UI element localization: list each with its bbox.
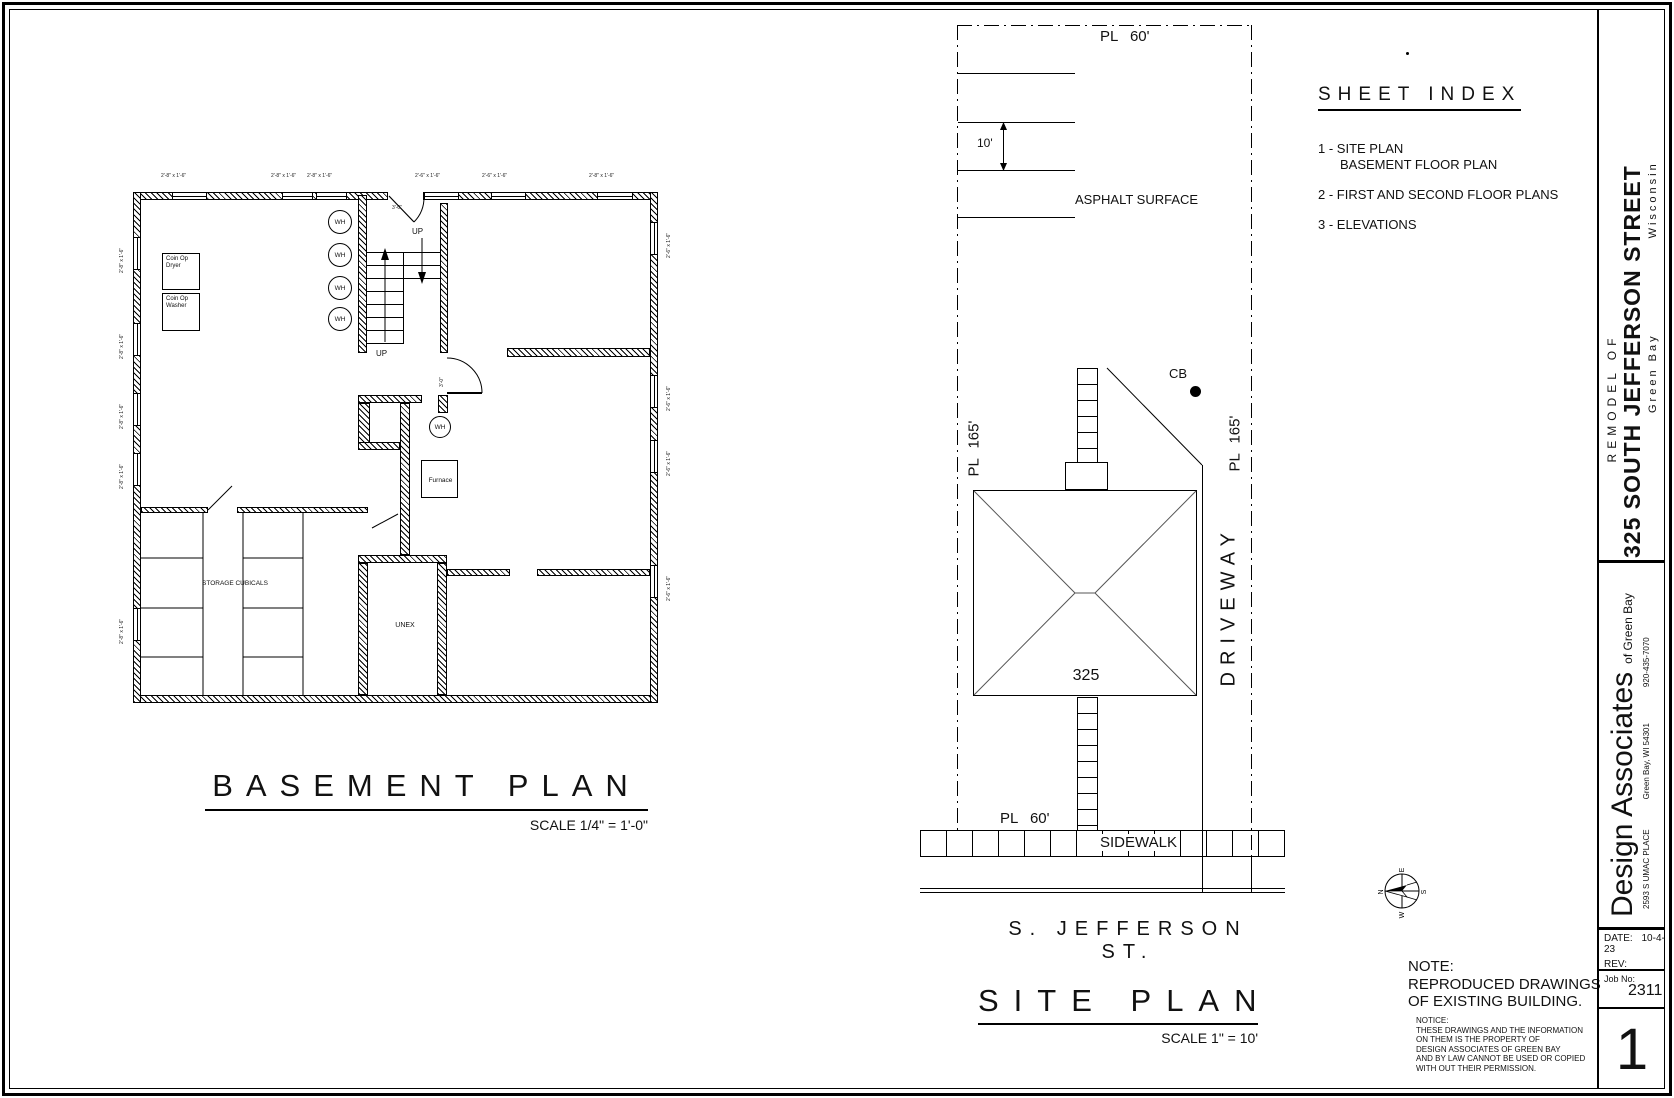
window-dim-label: 2'-8" x 1'-6" bbox=[589, 173, 614, 179]
site-title-block: SITE PLAN SCALE 1" = 10' bbox=[978, 983, 1258, 1046]
window-dim-label: 2'-8" x 1'-6" bbox=[119, 604, 125, 644]
date-label: DATE: bbox=[1604, 933, 1633, 944]
project-state: Wisconsin bbox=[1647, 161, 1659, 238]
pl-left-label: PL 165' bbox=[966, 415, 983, 477]
date-rev-box: DATE: 10-4-23 REV: bbox=[1599, 930, 1665, 971]
notice-line: WITH OUT THEIR PERMISSION. bbox=[1416, 1064, 1585, 1074]
building-number: 325 bbox=[1064, 667, 1108, 685]
window-dim-label: 2'-8" x 1'-6" bbox=[307, 173, 332, 179]
firm-name-row: Design Associates of Green Bay bbox=[1606, 563, 1640, 925]
note-line-2: OF EXISTING BUILDING. bbox=[1408, 993, 1601, 1011]
sidewalk-label: SIDEWALK bbox=[1098, 834, 1179, 851]
remodel-of-label: REMODEL OF bbox=[1605, 248, 1619, 548]
note-head: NOTE: bbox=[1408, 958, 1601, 976]
firm-city-state-zip: Green Bay, WI 54301 bbox=[1642, 723, 1651, 799]
parking-stripe bbox=[958, 122, 1075, 123]
driveway-flare bbox=[1107, 368, 1202, 465]
sheet-index-title: SHEET INDEX bbox=[1318, 84, 1521, 111]
sheet-number: 1 bbox=[1616, 1016, 1648, 1083]
compass-e: E bbox=[1399, 867, 1406, 872]
compass-n: N bbox=[1378, 889, 1385, 894]
compass-s: S bbox=[1421, 889, 1428, 894]
property-line-right bbox=[1251, 25, 1252, 857]
notice-line: ON THEM IS THE PROPERTY OF bbox=[1416, 1035, 1585, 1045]
project-box: REMODEL OF 325 SOUTH JEFFERSON STREET Gr… bbox=[1599, 9, 1665, 560]
rev-label: REV: bbox=[1604, 959, 1665, 970]
firm-contact-row: 2593 S UMAC PLACE Green Bay, WI 54301 92… bbox=[1642, 563, 1651, 925]
firm-address: 2593 S UMAC PLACE bbox=[1642, 829, 1651, 909]
notice-head: NOTICE: bbox=[1416, 1016, 1585, 1026]
street-name: S. JEFFERSON ST. bbox=[978, 918, 1278, 964]
property-line-left bbox=[957, 25, 958, 830]
compass-rose: E N S W bbox=[1374, 864, 1432, 922]
drawing-sheet: 2'-8" x 1'-6" 2'-8" x 1'-6" 2'-8" x 1'-6… bbox=[0, 0, 1674, 1098]
index-item-3: 3 - ELEVATIONS bbox=[1318, 217, 1558, 233]
curb-line bbox=[920, 888, 1285, 889]
window-dim-label: 2'-8" x 1'-6" bbox=[119, 319, 125, 359]
site-title: SITE PLAN bbox=[978, 983, 1258, 1025]
sheet-index: SHEET INDEX 1 - SITE PLAN BASEMENT FLOOR… bbox=[1318, 84, 1558, 233]
window-dim-label: 2'-8" x 1'-6" bbox=[161, 173, 186, 179]
street-line bbox=[920, 892, 1285, 893]
project-title: 325 SOUTH JEFFERSON STREET bbox=[1619, 13, 1646, 558]
dim-10-label: 10' bbox=[977, 136, 993, 150]
compass-w: W bbox=[1399, 911, 1406, 918]
parking-stripe bbox=[958, 170, 1075, 171]
project-city: Green Bay bbox=[1647, 333, 1659, 413]
title-block-column: REMODEL OF 325 SOUTH JEFFERSON STREET Gr… bbox=[1597, 9, 1665, 1089]
window-dim-label: 2'-6" x 1'-6" bbox=[482, 173, 507, 179]
notice-line: DESIGN ASSOCIATES OF GREEN BAY bbox=[1416, 1045, 1585, 1055]
pl-bottom-label: PL 60' bbox=[1000, 810, 1050, 827]
driveway-edge bbox=[1202, 465, 1203, 893]
dim-10-arrows bbox=[999, 122, 1008, 171]
firm-name: Design Associates bbox=[1606, 672, 1640, 917]
index-item-2: 2 - FIRST AND SECOND FLOOR PLANS bbox=[1318, 187, 1558, 203]
firm-subtitle: of Green Bay bbox=[1621, 593, 1635, 664]
building-stoop bbox=[1065, 462, 1108, 490]
job-box: Job No: 2311 bbox=[1599, 971, 1665, 1009]
project-location: Green Bay Wisconsin bbox=[1647, 13, 1659, 558]
window-dim-label: 2'-6" x 1'-6" bbox=[415, 173, 440, 179]
notice-line: THESE DRAWINGS AND THE INFORMATION bbox=[1416, 1026, 1585, 1036]
notice-block: NOTICE: THESE DRAWINGS AND THE INFORMATI… bbox=[1416, 1016, 1585, 1074]
catch-basin-dot bbox=[1190, 386, 1201, 397]
basement-title: BASEMENT PLAN bbox=[205, 768, 648, 811]
index-item-1b: BASEMENT FLOOR PLAN bbox=[1340, 157, 1558, 173]
window-dim-label: 2'-6" x 1'-6" bbox=[666, 561, 672, 601]
asphalt-label: ASPHALT SURFACE bbox=[1075, 192, 1198, 207]
catch-basin-label: CB bbox=[1169, 366, 1187, 381]
window-dim-label: 2'-6" x 1'-6" bbox=[666, 371, 672, 411]
parking-stripe bbox=[958, 73, 1075, 74]
property-line-top bbox=[957, 25, 1251, 26]
pl-right-label: PL 165' bbox=[1227, 410, 1244, 472]
walkway-upper bbox=[1077, 368, 1098, 462]
date-row: DATE: 10-4-23 bbox=[1604, 933, 1665, 955]
window-dim-label: 2'-8" x 1'-6" bbox=[271, 173, 296, 179]
stray-dot bbox=[1406, 52, 1409, 55]
window-dim-label: 2'-6" x 1'-6" bbox=[666, 218, 672, 258]
window-dim-label: 2'-8" x 1'-6" bbox=[119, 233, 125, 273]
index-item-1: 1 - SITE PLAN bbox=[1318, 141, 1558, 157]
firm-phone: 920-435-7070 bbox=[1642, 637, 1651, 687]
window-dim-label: 2'-6" x 1'-6" bbox=[666, 436, 672, 476]
note-block: NOTE: REPRODUCED DRAWINGS OF EXISTING BU… bbox=[1408, 958, 1601, 1011]
building-325: 325 bbox=[973, 490, 1197, 696]
firm-box: Design Associates of Green Bay 2593 S UM… bbox=[1599, 560, 1665, 930]
job-value: 2311 bbox=[1628, 982, 1665, 1000]
pl-top-label: PL 60' bbox=[1100, 28, 1150, 45]
walkway-lower bbox=[1077, 697, 1098, 830]
basement-plan: 2'-8" x 1'-6" 2'-8" x 1'-6" 2'-8" x 1'-6… bbox=[133, 192, 658, 703]
site-scale: SCALE 1" = 10' bbox=[978, 1030, 1258, 1046]
basement-title-block: BASEMENT PLAN SCALE 1/4" = 1'-0" bbox=[205, 768, 648, 833]
note-line-1: REPRODUCED DRAWINGS bbox=[1408, 976, 1601, 994]
notice-line: AND BY LAW CANNOT BE USED OR COPIED bbox=[1416, 1054, 1585, 1064]
basement-scale: SCALE 1/4" = 1'-0" bbox=[205, 817, 648, 833]
parking-stripe bbox=[958, 217, 1075, 218]
window-dim-label: 2'-8" x 1'-6" bbox=[119, 389, 125, 429]
window-dim-label: 2'-8" x 1'-6" bbox=[119, 449, 125, 489]
sheet-number-box: 1 bbox=[1599, 1009, 1665, 1089]
driveway-label: DRIVEWAY bbox=[1218, 529, 1241, 687]
roof-lines bbox=[974, 491, 1196, 695]
plan-linework bbox=[133, 192, 658, 703]
